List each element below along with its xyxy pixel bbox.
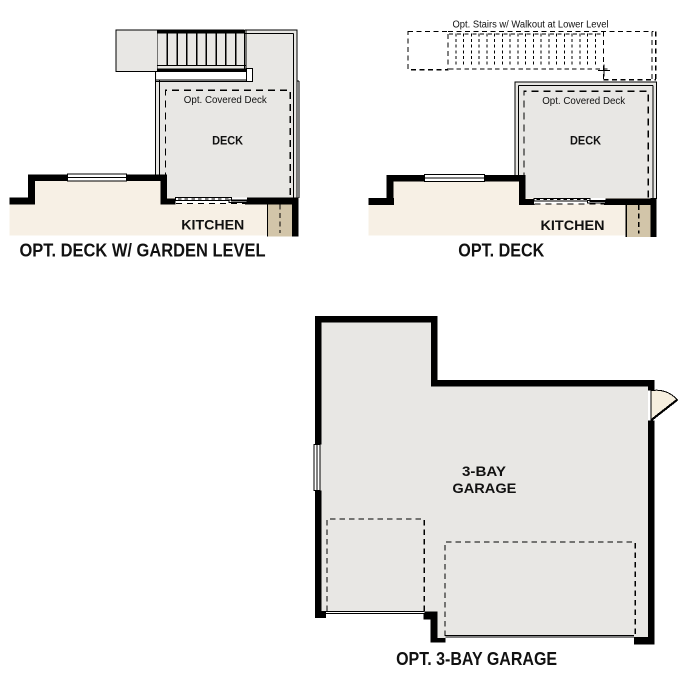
svg-text:OPT. DECK W/ GARDEN LEVEL: OPT. DECK W/ GARDEN LEVEL [20, 240, 266, 260]
svg-text:KITCHEN: KITCHEN [181, 216, 244, 232]
svg-text:3-BAY: 3-BAY [462, 464, 506, 479]
svg-text:OPT. 3-BAY GARAGE: OPT. 3-BAY GARAGE [396, 649, 557, 669]
svg-text:Opt. Covered Deck: Opt. Covered Deck [184, 95, 268, 106]
svg-text:OPT. DECK: OPT. DECK [458, 240, 544, 260]
svg-text:DECK: DECK [212, 135, 244, 147]
svg-text:GARAGE: GARAGE [452, 481, 516, 496]
svg-text:Opt. Stairs w/ Walkout at Lowe: Opt. Stairs w/ Walkout at Lower Level [453, 19, 609, 30]
svg-text:Opt. Covered Deck: Opt. Covered Deck [542, 96, 626, 107]
svg-text:DECK: DECK [570, 136, 602, 148]
svg-text:KITCHEN: KITCHEN [541, 217, 605, 233]
